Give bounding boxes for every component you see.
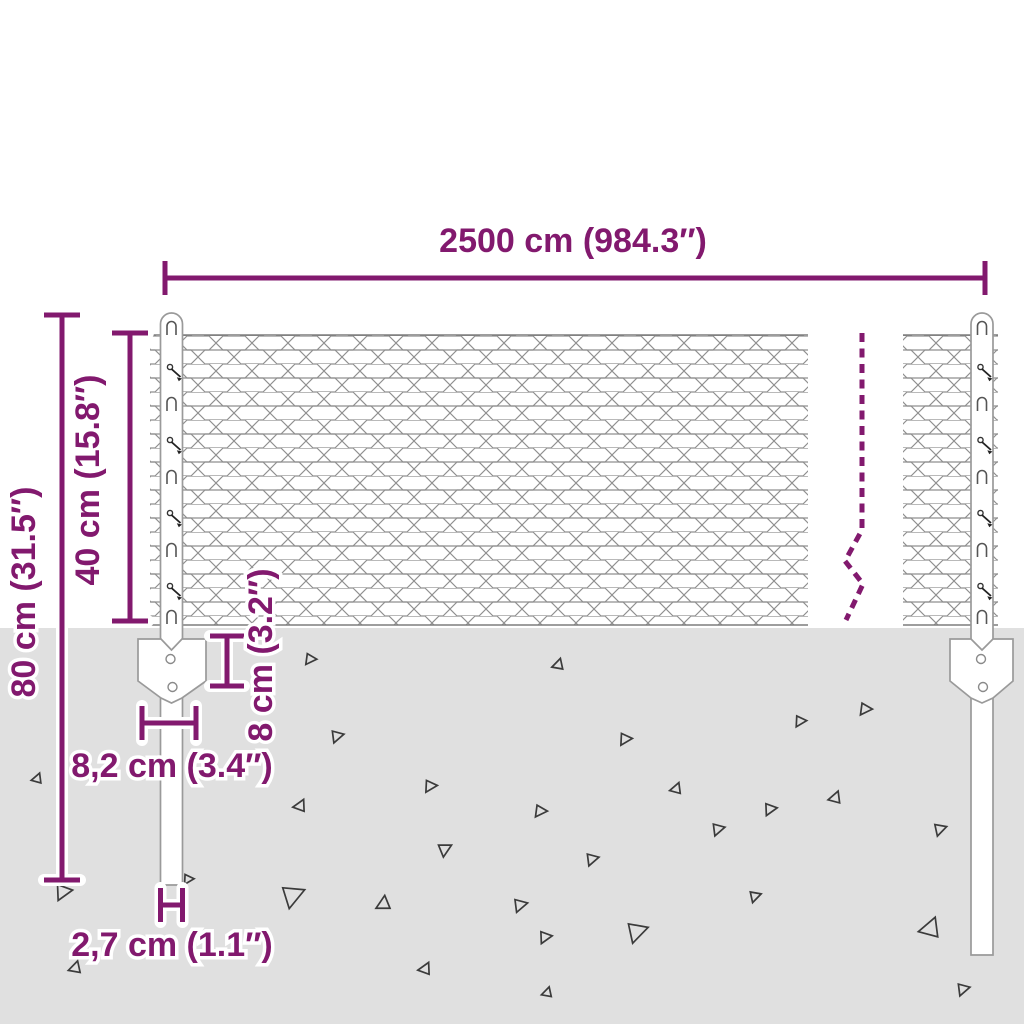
fence-dimension-diagram: 2500 cm (984.3″) 80 cm (31.5″) 40 cm (15… (0, 0, 1024, 1024)
anchor-plate-height-label: 8 cm (3.2″) (242, 568, 280, 741)
fence-length-label: 2500 cm (984.3″) (439, 222, 707, 260)
mesh-height-label: 40 cm (15.8″) (69, 375, 107, 586)
break-line (845, 333, 863, 620)
anchor-plate-width-label: 8,2 cm (3.4″) (71, 747, 273, 785)
total-post-height-label: 80 cm (31.5″) (5, 487, 43, 698)
dimension-mesh-height: 40 cm (15.8″) (69, 333, 148, 621)
dimension-fence-length: 2500 cm (984.3″) (165, 222, 985, 295)
post-diameter-label: 2,7 cm (1.1″) (71, 926, 273, 964)
diagram-canvas: 2500 cm (984.3″) 80 cm (31.5″) 40 cm (15… (0, 0, 1024, 1024)
